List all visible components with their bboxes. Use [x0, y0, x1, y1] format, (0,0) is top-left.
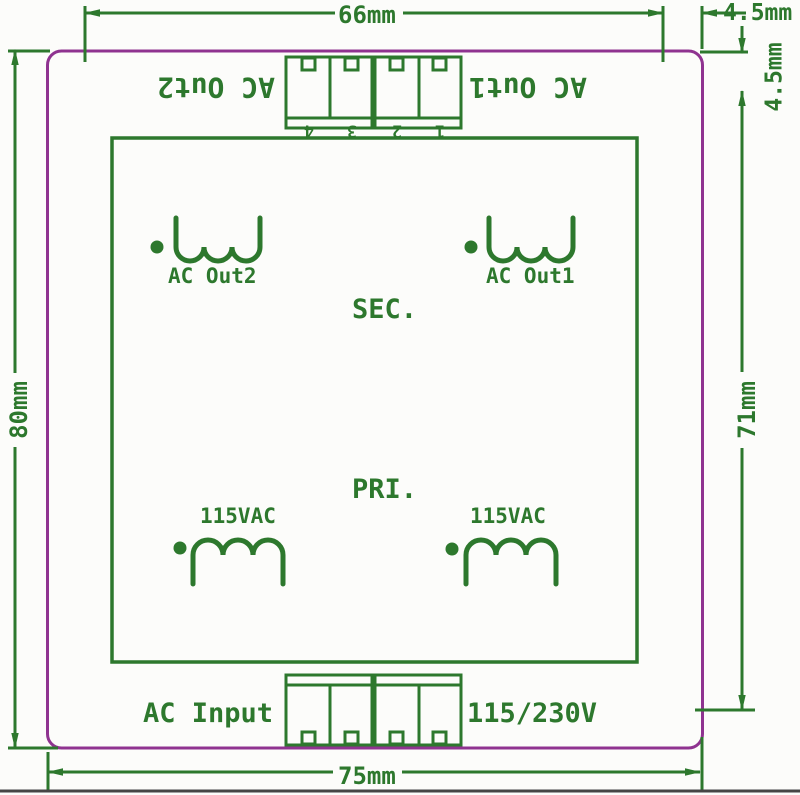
- top-silk-ac-out1-label: AC Out1: [469, 73, 587, 101]
- primary-coil-left-icon: [174, 540, 284, 584]
- top-pin-2-label: 2: [392, 122, 402, 139]
- top-silk-ac-out2-label: AC Out2: [157, 73, 275, 101]
- diagram-canvas: [0, 0, 800, 795]
- primary-label: PRI.: [352, 476, 417, 503]
- board-outline: [48, 51, 703, 748]
- top-terminal-block: [286, 57, 461, 128]
- pcb-dimension-diagram: 66mm 4.5mm 4.5mm 80mm 71mm 75mm AC Out2 …: [0, 0, 800, 795]
- dimension-right-top-offset-label: 4.5mm: [764, 42, 787, 111]
- input-voltage-label: 115/230V: [467, 700, 597, 727]
- top-pin-1-label: 1: [435, 122, 445, 139]
- secondary-label: SEC.: [352, 296, 417, 323]
- primary-coil-right-icon: [446, 540, 557, 584]
- coil-ac-out2-label: AC Out2: [168, 266, 257, 287]
- dimension-top-right-offset-label: 4.5mm: [723, 2, 792, 25]
- top-pin-4-label: 4: [304, 122, 314, 139]
- dimension-left-height-label: 80mm: [7, 381, 31, 439]
- coil-ac-out1-label: AC Out1: [486, 266, 575, 287]
- bottom-terminal-block: [286, 675, 461, 745]
- primary-left-voltage-label: 115VAC: [200, 506, 276, 527]
- secondary-coil-out1-icon: [465, 218, 574, 261]
- dimension-bottom-width-label: 75mm: [338, 764, 396, 788]
- ac-input-label: AC Input: [143, 700, 273, 727]
- top-pin-3-label: 3: [347, 122, 357, 139]
- dimension-top-width-label: 66mm: [338, 3, 396, 27]
- dimension-right-height-label: 71mm: [735, 381, 759, 439]
- primary-right-voltage-label: 115VAC: [470, 506, 546, 527]
- secondary-coil-out2-icon: [151, 218, 261, 261]
